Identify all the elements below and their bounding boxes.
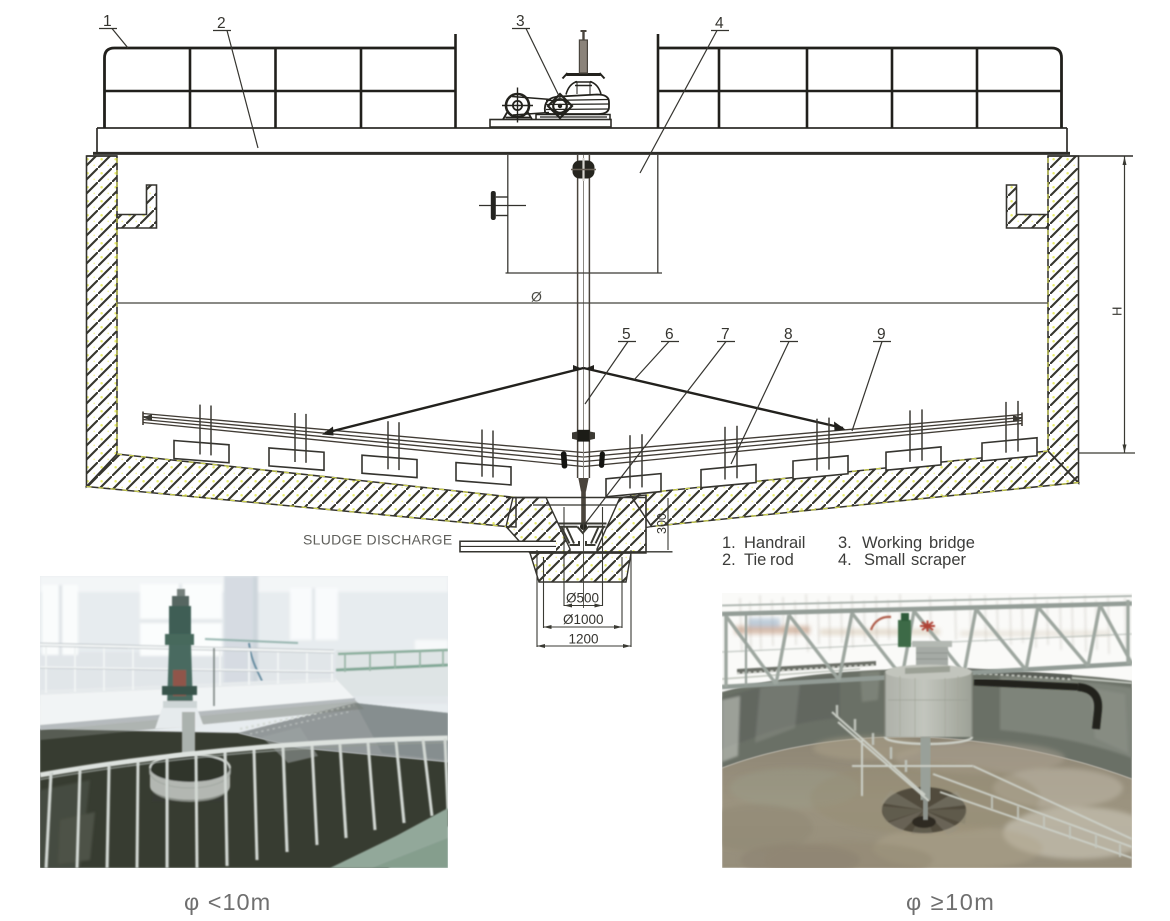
svg-text:φ ≥10m: φ ≥10m — [906, 889, 995, 915]
svg-text:1.Handrail3.Workingbridge: 1.Handrail3.Workingbridge — [722, 534, 975, 552]
svg-text:300: 300 — [655, 513, 669, 534]
svg-text:1: 1 — [103, 13, 112, 30]
svg-text:Ø: Ø — [531, 289, 542, 305]
svg-text:2: 2 — [217, 15, 226, 32]
svg-text:5: 5 — [622, 326, 631, 343]
svg-text:9: 9 — [877, 326, 886, 343]
svg-text:1200: 1200 — [569, 632, 599, 647]
svg-text:H: H — [1110, 307, 1125, 316]
svg-text:SLUDGE DISCHARGE: SLUDGE DISCHARGE — [303, 532, 453, 548]
svg-text:3: 3 — [516, 13, 525, 30]
svg-text:8: 8 — [784, 326, 793, 343]
svg-text:Ø1000: Ø1000 — [563, 612, 604, 627]
svg-text:4: 4 — [715, 15, 724, 32]
svg-text:6: 6 — [665, 326, 674, 343]
svg-text:2.Tierod4.Smallscraper: 2.Tierod4.Smallscraper — [722, 551, 967, 569]
svg-text:Ø500: Ø500 — [566, 591, 599, 606]
svg-text:φ <10m: φ <10m — [184, 889, 271, 915]
svg-text:7: 7 — [721, 326, 730, 343]
